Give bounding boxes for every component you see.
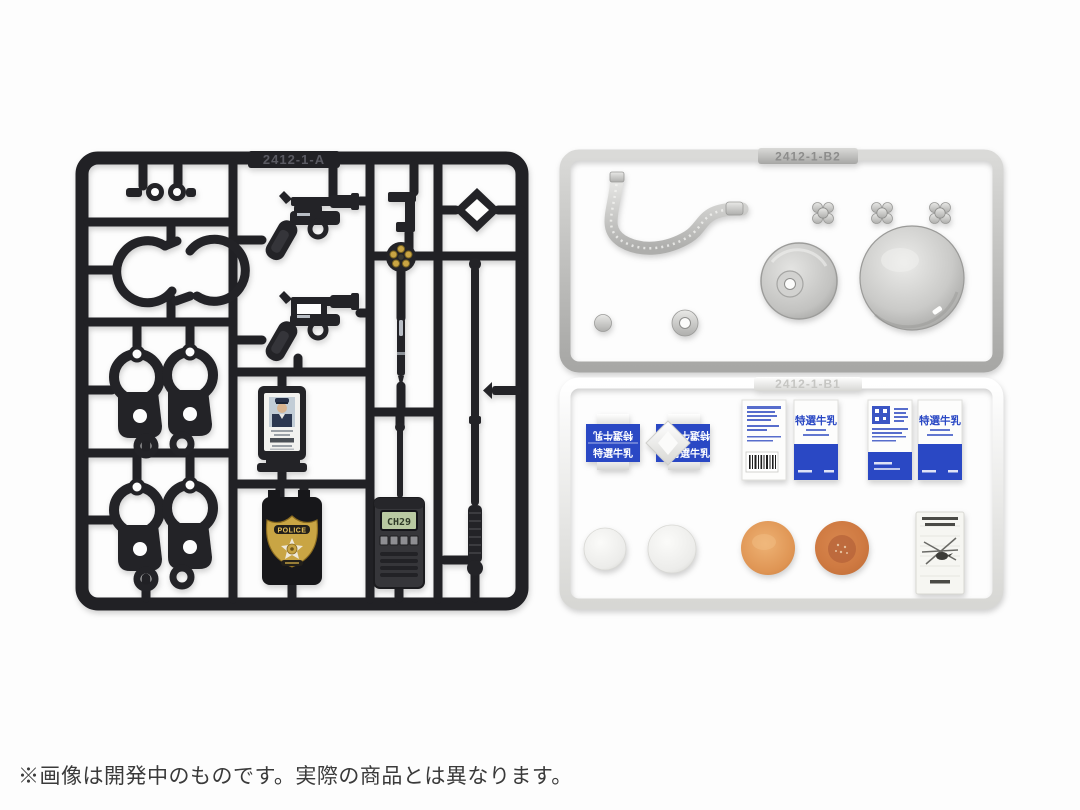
black-sprue-label: 2412-1-A — [263, 152, 325, 167]
handcuff-chain-link — [126, 183, 196, 201]
steamed-bun-1 — [584, 528, 626, 570]
disclaimer-caption: ※画像は開発中のものです。実際の商品とは異なります。 — [18, 760, 573, 790]
pot-lid-with-hole — [761, 243, 837, 319]
milk-carton-top: 特選牛乳 特選牛乳 — [586, 414, 640, 470]
revolver-open-frame — [262, 291, 359, 364]
small-disc — [595, 315, 612, 332]
holster-clip — [388, 192, 416, 232]
sprue-scene: 2412-1-A — [0, 0, 1080, 810]
steamed-bun-2 — [648, 525, 696, 573]
open-handcuffs — [117, 239, 246, 302]
silver-sprue-label: 2412-1-B2 — [775, 150, 841, 164]
milk-top-text: 特選牛乳 — [593, 447, 633, 460]
baked-bun-1 — [741, 521, 795, 575]
notice-flyer — [916, 512, 964, 594]
pen — [397, 318, 405, 388]
milk-carton-side-back — [868, 400, 912, 480]
handcuffs-pair-1 — [114, 346, 213, 456]
qr-code — [872, 406, 890, 424]
flexible-hose — [610, 172, 743, 248]
milk-carton-top-opened: 特選牛乳 特選牛乳 — [646, 414, 710, 470]
milk-front-title: 特選牛乳 — [919, 414, 961, 427]
radio-lcd-text: CH29 — [387, 517, 411, 528]
diamond-ring — [454, 188, 500, 232]
badge-police-text: POLICE — [277, 528, 306, 535]
baked-bun-2 — [815, 521, 869, 575]
police-id-card — [257, 386, 307, 472]
telescopic-baton — [467, 258, 521, 576]
revolver-cylinder-with-bullets — [386, 242, 416, 272]
silver-sprue: 2412-1-B2 — [565, 148, 998, 367]
metal-bowl — [860, 226, 964, 330]
milk-top-text-inverted: 特選牛乳 — [593, 429, 633, 442]
milk-carton-side-front-2: 特選牛乳 — [918, 400, 962, 480]
milk-carton-side-front-1: 特選牛乳 — [794, 400, 838, 480]
white-sprue: 2412-1-B1 特選牛乳 特選牛乳 特選牛乳 特選牛乳 — [565, 377, 998, 604]
white-sprue-label: 2412-1-B1 — [775, 377, 841, 391]
milk-carton-side-nutrition — [742, 400, 786, 480]
police-badge-wallet: POLICE — [262, 490, 322, 585]
milk-front-title: 特選牛乳 — [795, 414, 837, 427]
handcuffs-pair-2 — [114, 479, 213, 589]
product-photo: 2412-1-A — [0, 0, 1080, 810]
washer-ring — [672, 310, 698, 336]
revolver — [262, 191, 359, 263]
handheld-radio: CH29 — [374, 422, 424, 588]
radio-antenna — [397, 428, 403, 498]
black-sprue: 2412-1-A — [82, 151, 522, 604]
